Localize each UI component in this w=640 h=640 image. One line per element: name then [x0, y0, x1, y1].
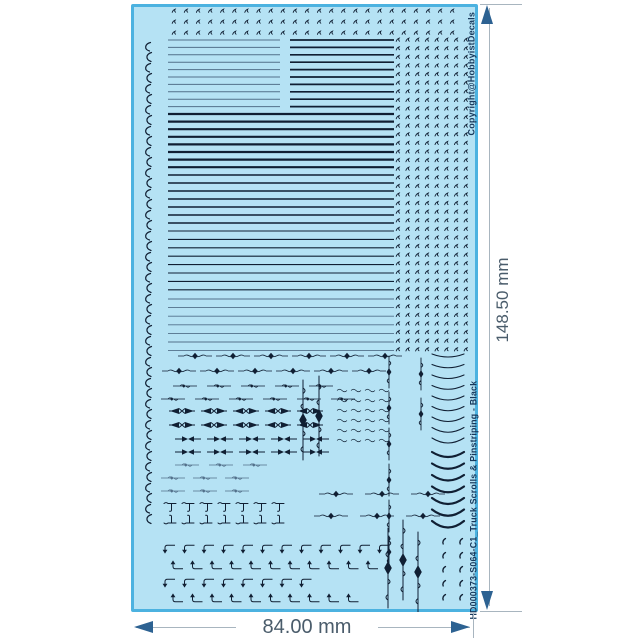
decal-corner1	[163, 579, 312, 587]
decal-scrollsm	[161, 489, 249, 493]
decal-scrollsm	[175, 463, 267, 467]
width-dimension-label: 84.00 mm	[236, 615, 378, 639]
decal-tick-row	[172, 31, 454, 34]
decal-dash-grid	[337, 389, 389, 442]
decal-tmark	[164, 503, 284, 512]
decal-hscroll	[319, 491, 445, 497]
decal-tmark2	[164, 515, 284, 524]
decal-hscroll	[178, 353, 402, 359]
decal-stripes	[290, 40, 394, 107]
decal-vscroll-lg	[315, 376, 323, 456]
product-image-decal-sheet: Copyright@HobbyistDecals HD000373-S064-C…	[0, 0, 640, 640]
decal-vscroll-lg	[399, 520, 407, 600]
height-dimension-label: 148.50 mm	[494, 249, 512, 351]
copyright-caption: Copyright@HobbyistDecals	[466, 16, 479, 136]
width-arrow-right-icon	[451, 621, 470, 633]
decal-scrollsm	[161, 397, 355, 401]
height-dimension-line	[489, 8, 490, 606]
decal-tick-row	[172, 9, 454, 12]
decal-vscroll	[419, 358, 424, 390]
decal-stripes	[168, 114, 394, 167]
decal-vscroll	[419, 398, 424, 430]
decal-vscroll-lg	[384, 528, 392, 608]
sheet-id-caption: HD000373-S064-C1_Truck Scrolls & Pinstri…	[468, 384, 481, 620]
decal-vscroll-lg	[299, 380, 307, 460]
decal-curl-col	[146, 43, 152, 524]
decal-tick-grid	[396, 38, 467, 351]
decal-scrollsm	[173, 384, 333, 388]
decal-arc-col	[432, 354, 464, 443]
decal-vscroll-lg	[414, 532, 422, 612]
decal-artwork	[131, 4, 478, 612]
decal-bowtie	[169, 422, 323, 428]
decal-arrowbt	[175, 449, 329, 455]
decal-stripes	[168, 40, 280, 107]
decal-sheet: Copyright@HobbyistDecals HD000373-S064-C…	[131, 4, 478, 612]
decal-stripes	[168, 175, 394, 223]
height-arrow-up-icon	[481, 5, 493, 24]
decal-arrowbt	[175, 436, 329, 442]
height-extension-tick-bottom	[480, 611, 522, 612]
decal-stripes	[168, 231, 394, 290]
decal-corner2	[171, 560, 378, 568]
decal-corner2	[171, 593, 359, 601]
width-extension-tick-right	[473, 612, 474, 638]
decal-tick-row	[172, 20, 454, 23]
decal-stripes	[168, 299, 394, 351]
decal-scrollsm	[161, 476, 249, 480]
decal-hscroll	[162, 368, 386, 374]
decal-hscroll	[314, 513, 440, 519]
decal-bowtie	[169, 408, 323, 414]
decal-corner1	[163, 545, 390, 553]
decal-comma-grid	[443, 539, 463, 601]
width-arrow-left-icon	[134, 621, 153, 633]
height-arrow-down-icon	[481, 591, 493, 610]
